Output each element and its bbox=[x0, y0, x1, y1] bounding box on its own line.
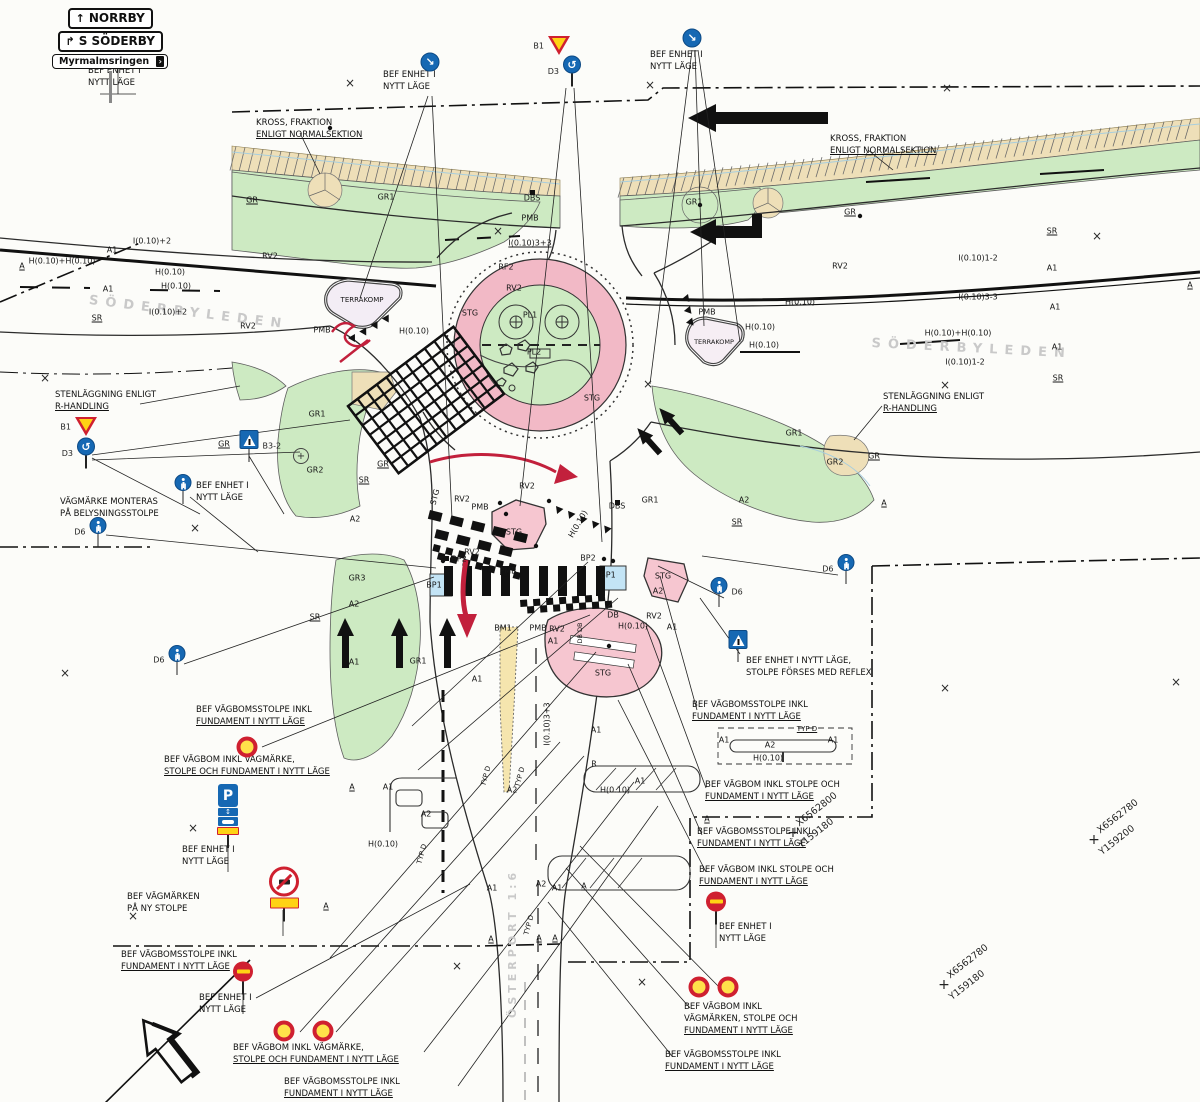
sign-code-label: D3 bbox=[548, 67, 559, 76]
pedestrian-path-sign-icon bbox=[90, 517, 107, 534]
plan-label-bp2: BP2 bbox=[580, 554, 595, 563]
plan-label-gr: GR bbox=[246, 196, 258, 205]
plan-label-h-0-10-: H(0.10) bbox=[785, 298, 815, 307]
plan-label-gr: GR bbox=[844, 208, 856, 217]
callout: BEF ENHET INYTT LÄGE bbox=[383, 70, 436, 94]
plan-label-a1: A1 bbox=[591, 726, 602, 735]
callout-line: STENLÄGGNING ENLIGT bbox=[883, 392, 984, 404]
plan-label-a1: A1 bbox=[1047, 264, 1058, 273]
callout-line: BEF VÄGBOM INKL bbox=[684, 1002, 798, 1014]
callout-line: BEF VÄGBOM INKL VÄGMÄRKE, bbox=[233, 1043, 399, 1055]
sign-code-label: B3-2 bbox=[263, 442, 282, 451]
callout-line: NYTT LÄGE bbox=[196, 493, 249, 505]
plan-label-a1: A1 bbox=[552, 884, 563, 893]
plan-label-pmb: PMB bbox=[471, 503, 488, 512]
callout-line: STOLPE OCH FUNDAMENT I NYTT LÄGE bbox=[164, 767, 330, 779]
survey-x-mark: × bbox=[643, 377, 653, 391]
plan-label-stg: STG bbox=[429, 488, 442, 506]
callout-line: FUNDAMENT I NYTT LÄGE bbox=[284, 1089, 400, 1101]
sign-code-label: D6 bbox=[822, 565, 833, 574]
plan-label-terrakomp: TERRAKOMP bbox=[341, 296, 384, 304]
survey-marker-icon: + bbox=[293, 448, 309, 464]
pedestrian-crossing-sign: B3-2 bbox=[240, 430, 259, 462]
callout-line: STOLPE FÖRSES MED REFLEX bbox=[746, 668, 872, 680]
callout: BEF VÄGBOMSSTOLPE INKLFUNDAMENT I NYTT L… bbox=[121, 950, 237, 974]
survey-x-mark: × bbox=[40, 371, 50, 385]
yield-sign-icon bbox=[548, 36, 570, 56]
plan-label-sr: SR bbox=[92, 314, 103, 323]
callout: VÄGMÄRKE MONTERASPÅ BELYSNINGSSTOLPE bbox=[60, 497, 159, 521]
plan-label-h-0-10-: H(0.10) bbox=[567, 509, 590, 540]
plan-label-gr2: GR2 bbox=[827, 458, 844, 467]
sign-code-label: D6 bbox=[732, 588, 743, 597]
callout-line: NYTT LÄGE bbox=[650, 62, 703, 74]
plan-label-i-0-10-2: I(0.10)+2 bbox=[133, 237, 171, 246]
callout-line: NYTT LÄGE bbox=[199, 1005, 252, 1017]
plan-label-rf2: RF2 bbox=[498, 263, 513, 272]
pedestrian-path-sign: D6 bbox=[169, 645, 186, 675]
callout-line: FUNDAMENT I NYTT LÄGE bbox=[697, 839, 813, 851]
plan-label-sr: SR bbox=[359, 476, 370, 485]
plan-label-h-0-10-: H(0.10) bbox=[749, 341, 779, 350]
keep-right-sign: ↘ bbox=[683, 29, 702, 48]
street-name-label: ÖSTERPORT 1:6 bbox=[506, 869, 519, 1018]
plan-label-pmb: PMB bbox=[313, 326, 330, 335]
plan-label-r: R bbox=[591, 760, 597, 769]
callout: STENLÄGGNING ENLIGTR-HANDLING bbox=[55, 390, 156, 414]
plan-label-h-0-10-h-0-10-: H(0.10)+H(0.10) bbox=[29, 257, 96, 266]
plan-label-i-0-10-3-3: I(0.10)3+3 bbox=[543, 702, 552, 745]
callout-line: BEF ENHET I bbox=[199, 993, 252, 1005]
plan-label-a: A bbox=[19, 262, 24, 271]
plan-label-a1: A1 bbox=[487, 884, 498, 893]
sign-code-label: B1 bbox=[60, 423, 71, 432]
plan-label-bp1: BP1 bbox=[600, 571, 615, 580]
plan-label-sr: SR bbox=[732, 518, 743, 527]
callout: BEF ENHET INYTT LÄGE bbox=[182, 845, 235, 869]
plan-label-a1: A1 bbox=[1050, 303, 1061, 312]
callout: KROSS, FRAKTIONENLIGT NORMALSEKTION bbox=[256, 118, 362, 142]
plan-label-h-0-10-h-0-10-: H(0.10)+H(0.10) bbox=[925, 329, 992, 338]
callout: BEF ENHET INYTT LÄGE bbox=[199, 993, 252, 1017]
direction-sign-row: ↱S SÖDERBY bbox=[58, 31, 163, 52]
plan-label-a2: A2 bbox=[421, 810, 432, 819]
roundabout-sign: ↺D3 bbox=[563, 56, 581, 87]
plan-label-a1: A1 bbox=[828, 736, 839, 745]
survey-x-mark: × bbox=[493, 224, 503, 238]
plan-label-gr2: GR2 bbox=[307, 466, 324, 475]
plan-label-h-0-10-: H(0.10) bbox=[600, 786, 630, 795]
plan-label-a2: A2 bbox=[507, 786, 518, 795]
callout: BEF VÄGBOM INKL STOLPE OCHFUNDAMENT I NY… bbox=[705, 780, 840, 804]
callout: BEF VÄGBOMSSTOLPE INKLFUNDAMENT I NYTT L… bbox=[697, 827, 813, 851]
plan-label-gr1: GR1 bbox=[309, 410, 326, 419]
callout: BEF VÄGBOMSSTOLPE INKLFUNDAMENT I NYTT L… bbox=[284, 1077, 400, 1101]
plan-label-a1: A1 bbox=[635, 777, 646, 786]
sub-plate bbox=[218, 817, 238, 826]
plan-label-stg: STG bbox=[595, 669, 611, 678]
plan-label-i-0-10-3-3: I(0.10)3+3 bbox=[508, 239, 551, 248]
callout-line: BEF VÄGBOMSSTOLPE INKL bbox=[665, 1050, 781, 1062]
yield-sign: B1 bbox=[548, 36, 570, 56]
plan-label-a2: A2 bbox=[536, 880, 547, 889]
plan-label-h-0-10-: H(0.10) bbox=[399, 327, 429, 336]
truck-prohibition-sign-icon bbox=[269, 867, 299, 897]
plan-label-a: A bbox=[581, 882, 586, 891]
plan-label-sr: SR bbox=[1053, 374, 1064, 383]
callout-line: FUNDAMENT I NYTT LÄGE bbox=[665, 1062, 781, 1074]
sign-code-label: D3 bbox=[62, 449, 73, 458]
sub-plate bbox=[270, 898, 299, 909]
pedestrian-crossing-sign bbox=[729, 630, 748, 662]
keep-right-sign: ↘ bbox=[421, 53, 440, 72]
plan-label-db-db: DB DB bbox=[576, 623, 584, 644]
plan-label-a: A bbox=[349, 783, 354, 792]
plan-label-a: A bbox=[552, 934, 557, 943]
callout: BEF ENHET INYTT LÄGE bbox=[196, 481, 249, 505]
plan-label-h-0-10-: H(0.10) bbox=[618, 622, 648, 631]
plan-label-a1: A1 bbox=[383, 783, 394, 792]
roundabout-sign-icon: ↺ bbox=[563, 56, 581, 74]
direction-sign-board: ↑NORRBY↱S SÖDERBYMyrmalmsringen› bbox=[52, 8, 168, 103]
plan-label-a1: A1 bbox=[472, 675, 483, 684]
plan-label-gr1: GR1 bbox=[410, 657, 427, 666]
survey-x-mark: × bbox=[940, 378, 950, 392]
plan-label-stg: STG bbox=[584, 394, 600, 403]
callout-line: FUNDAMENT I NYTT LÄGE bbox=[705, 792, 840, 804]
plan-label-a1: A1 bbox=[1052, 343, 1063, 352]
no-entry-sign-icon bbox=[233, 962, 253, 982]
callout-line: BEF VÄGBOM INKL STOLPE OCH bbox=[699, 865, 834, 877]
barrier-marker-icon bbox=[313, 1021, 334, 1042]
chevron-icon: › bbox=[156, 56, 164, 67]
plan-label-h-0-10-: H(0.10) bbox=[368, 840, 398, 849]
plan-label-rv2: RV2 bbox=[519, 482, 535, 491]
sign-code-label: B1 bbox=[533, 42, 544, 51]
callout-line: VÄGMÄRKEN, STOLPE OCH bbox=[684, 1014, 798, 1026]
callout: BEF VÄGBOM INKL VÄGMÄRKE,STOLPE OCH FUND… bbox=[233, 1043, 399, 1067]
callout-line: BEF ENHET I bbox=[719, 922, 772, 934]
survey-x-mark: × bbox=[637, 975, 647, 989]
callout: BEF VÄGBOM INKL STOLPE OCHFUNDAMENT I NY… bbox=[699, 865, 834, 889]
pedestrian-path-sign-icon bbox=[838, 554, 855, 571]
barrier-marker-icon bbox=[689, 977, 710, 998]
plan-label-bp1: BP1 bbox=[426, 581, 441, 590]
callout-line: STENLÄGGNING ENLIGT bbox=[55, 390, 156, 402]
sub-plate: ↕ bbox=[218, 808, 238, 816]
callout-line: NYTT LÄGE bbox=[383, 82, 436, 94]
pedestrian-path-sign: D6 bbox=[90, 517, 107, 547]
callout: BEF VÄGBOMSSTOLPE INKLFUNDAMENT I NYTT L… bbox=[196, 705, 312, 729]
plan-label-a1: A1 bbox=[107, 246, 118, 255]
callout-line: BEF VÄGBOMSSTOLPE INKL bbox=[121, 950, 237, 962]
street-name-label: SÖDERBYLEDEN bbox=[88, 293, 289, 332]
plan-label-a2: A2 bbox=[349, 600, 360, 609]
plan-label-typ-d: TYP D bbox=[479, 765, 492, 787]
plan-label-typ-d: TYP D bbox=[415, 843, 428, 865]
plan-label-i-0-10-2: I(0.10)+2 bbox=[149, 308, 187, 317]
plan-label-sr: SR bbox=[1047, 227, 1058, 236]
survey-x-mark: × bbox=[60, 666, 70, 680]
survey-x-mark: × bbox=[942, 81, 952, 95]
plan-label-rv2: RV2 bbox=[262, 252, 278, 261]
pedestrian-path-sign bbox=[175, 474, 192, 504]
survey-x-mark: × bbox=[645, 78, 655, 92]
callout-line: NYTT LÄGE bbox=[182, 857, 235, 869]
callout-line: R-HANDLING bbox=[883, 404, 984, 416]
plan-label-a1: A1 bbox=[719, 736, 730, 745]
plan-label-a2: A2 bbox=[765, 741, 776, 750]
pedestrian-path-sign-icon bbox=[711, 577, 728, 594]
callout: BEF ENHET INYTT LÄGE bbox=[650, 50, 703, 74]
callout: BEF VÄGBOM INKLVÄGMÄRKEN, STOLPE OCHFUND… bbox=[684, 1002, 798, 1038]
arrow-icon: ↱ bbox=[66, 33, 75, 50]
callout-line: FUNDAMENT I NYTT LÄGE bbox=[196, 717, 312, 729]
survey-x-mark: × bbox=[1171, 675, 1181, 689]
destination-text: S SÖDERBY bbox=[79, 33, 155, 50]
callout-line: ENLIGT NORMALSEKTION bbox=[256, 130, 362, 142]
plan-label-stg: STG bbox=[506, 528, 522, 537]
road-construction-plan: AH(0.10)+H(0.10)A1I(0.10)+2H(0.10)H(0.10… bbox=[0, 0, 1200, 1102]
survey-x-mark: × bbox=[188, 821, 198, 835]
plan-label-gr: GR bbox=[868, 452, 880, 461]
plan-label-dbs: DBS bbox=[524, 194, 541, 203]
yield-sign: B1 bbox=[75, 417, 97, 437]
survey-x-mark: × bbox=[345, 76, 355, 90]
survey-x-mark: × bbox=[452, 959, 462, 973]
callout: KROSS, FRAKTIONENLIGT NORMALSEKTION bbox=[830, 134, 936, 158]
parking-sign-icon: P bbox=[218, 784, 238, 807]
callout-line: PÅ BELYSNINGSSTOLPE bbox=[60, 509, 159, 521]
plan-label-rv2: RV2 bbox=[240, 322, 256, 331]
callout-line: BEF VÄGBOMSSTOLPE INKL bbox=[692, 700, 808, 712]
plan-label-a1: A1 bbox=[103, 285, 114, 294]
callout: BEF ENHET INYTT LÄGE bbox=[719, 922, 772, 946]
callout-line: FUNDAMENT I NYTT LÄGE bbox=[699, 877, 834, 889]
callout-line: FUNDAMENT I NYTT LÄGE bbox=[121, 962, 237, 974]
plan-label-a1: A1 bbox=[349, 658, 360, 667]
pedestrian-path-sign: D6 bbox=[838, 554, 855, 584]
direction-sign-row: Myrmalmsringen› bbox=[52, 54, 168, 69]
callout-line: R-HANDLING bbox=[55, 402, 156, 414]
keep-right-sign-icon: ↘ bbox=[683, 29, 702, 48]
survey-marker: + bbox=[293, 448, 309, 464]
plan-label-a: A bbox=[323, 902, 328, 911]
plan-label-stg: STG bbox=[655, 572, 671, 581]
plan-label-rv2: RV2 bbox=[549, 625, 565, 634]
plan-label-rv2: RV2 bbox=[646, 612, 662, 621]
callout-line: BEF VÄGBOMSSTOLPE INKL bbox=[284, 1077, 400, 1089]
survey-x-mark: × bbox=[190, 521, 200, 535]
barrier-marker bbox=[718, 977, 739, 998]
barrier-marker bbox=[313, 1021, 334, 1042]
plan-label-typ-d: TYP D bbox=[797, 725, 817, 733]
barrier-marker bbox=[274, 1021, 295, 1042]
sign-code-label: D6 bbox=[74, 528, 85, 537]
plan-label-gr1: GR1 bbox=[686, 198, 703, 207]
sign-code-label: D6 bbox=[153, 656, 164, 665]
plan-label-i-0-10-1-2: I(0.10)1-2 bbox=[945, 358, 984, 367]
keep-right-sign-icon: ↘ bbox=[421, 53, 440, 72]
callout-line: KROSS, FRAKTION bbox=[256, 118, 362, 130]
plan-label-dbs: DBS bbox=[609, 502, 626, 511]
survey-x-mark: × bbox=[940, 681, 950, 695]
callout-line: FUNDAMENT I NYTT LÄGE bbox=[692, 712, 808, 724]
plan-label-rv2: RV2 bbox=[506, 284, 522, 293]
plan-label-typ-d: TYP D bbox=[522, 914, 535, 936]
callout-line: VÄGMÄRKE MONTERAS bbox=[60, 497, 159, 509]
plan-label-gr1: GR1 bbox=[786, 429, 803, 438]
barrier-marker-icon bbox=[718, 977, 739, 998]
callout-line: BEF VÄGMÄRKEN bbox=[127, 892, 200, 904]
plan-label-pmb: PMB bbox=[521, 214, 538, 223]
plan-label-bm1: BM1 bbox=[494, 624, 511, 633]
callout-line: FUNDAMENT I NYTT LÄGE bbox=[684, 1026, 798, 1038]
plan-label-stg: STG bbox=[462, 309, 478, 318]
plan-label-gr1: GR1 bbox=[642, 496, 659, 505]
plan-label-i-0-10-1-2: I(0.10)1-2 bbox=[958, 254, 997, 263]
plan-label-a2: A2 bbox=[350, 515, 361, 524]
plan-label-a: A bbox=[1187, 281, 1192, 290]
callout: BEF VÄGBOMSSTOLPE INKLFUNDAMENT I NYTT L… bbox=[665, 1050, 781, 1074]
plan-label-rv2: RV2 bbox=[832, 262, 848, 271]
plan-label-pl1: PL1 bbox=[523, 311, 537, 320]
plus-icon: + bbox=[938, 977, 950, 993]
callout: STENLÄGGNING ENLIGTR-HANDLING bbox=[883, 392, 984, 416]
plan-label-a1: A1 bbox=[667, 623, 678, 632]
plan-label-rv2: RV2 bbox=[454, 495, 470, 504]
no-entry-sign-icon bbox=[706, 892, 726, 912]
pedestrian-path-sign: D6 bbox=[711, 577, 728, 607]
plan-label-pmb: PMB bbox=[529, 624, 546, 633]
callout-line: BEF ENHET I NYTT LÄGE, bbox=[746, 656, 872, 668]
plan-label-a2: A2 bbox=[739, 496, 750, 505]
pedestrian-path-sign-icon bbox=[175, 474, 192, 491]
callout-line: PÅ NY STOLPE bbox=[127, 904, 200, 916]
pedestrian-crossing-sign-icon bbox=[240, 430, 259, 449]
plan-label-gr3: GR3 bbox=[349, 574, 366, 583]
pedestrian-crossing-sign-icon bbox=[729, 630, 748, 649]
yield-sign-icon bbox=[75, 417, 97, 437]
plan-label-gr: GR bbox=[377, 460, 389, 469]
plan-label-a1: A1 bbox=[548, 637, 559, 646]
no-entry-sign bbox=[706, 892, 726, 925]
plan-label-pl2: PL2 bbox=[527, 348, 541, 357]
sub-plate bbox=[217, 827, 239, 835]
plan-label-a: A bbox=[488, 935, 493, 944]
plan-label-a: A bbox=[881, 499, 886, 508]
callout-line: ENLIGT NORMALSEKTION bbox=[830, 146, 936, 158]
callout-line: KROSS, FRAKTION bbox=[830, 134, 936, 146]
direction-sign-row: ↑NORRBY bbox=[68, 8, 153, 29]
plan-label-i-0-10-3-3: I(0.10)3-3 bbox=[958, 293, 997, 302]
callout-line: BEF ENHET I bbox=[650, 50, 703, 62]
callout-line: NYTT LÄGE bbox=[719, 934, 772, 946]
parking-sign: P↕ bbox=[217, 784, 239, 848]
barrier-marker-icon bbox=[237, 737, 258, 758]
callout: BEF VÄGBOM INKL VÄGMÄRKE,STOLPE OCH FUND… bbox=[164, 755, 330, 779]
plan-label-gr: GR bbox=[218, 440, 230, 449]
no-entry-sign bbox=[233, 962, 253, 995]
pedestrian-path-sign-icon bbox=[169, 645, 186, 662]
callout-line: BEF ENHET I bbox=[383, 70, 436, 82]
barrier-marker bbox=[237, 737, 258, 758]
plan-label-h-0-10-: H(0.10) bbox=[753, 754, 783, 763]
destination-text: NORRBY bbox=[89, 10, 145, 27]
plan-label-pmb: PMB bbox=[499, 567, 516, 576]
roundabout-sign-icon: ↺ bbox=[77, 438, 95, 456]
plan-label-rv2: RV2 bbox=[464, 548, 480, 557]
plan-label-h-0-10-: H(0.10) bbox=[161, 282, 191, 291]
callout-line: BEF VÄGBOMSSTOLPE INKL bbox=[196, 705, 312, 717]
callout-line: STOLPE OCH FUNDAMENT I NYTT LÄGE bbox=[233, 1055, 399, 1067]
callout: BEF ENHET I NYTT LÄGE,STOLPE FÖRSES MED … bbox=[746, 656, 872, 680]
plan-label-h-0-10-: H(0.10) bbox=[155, 268, 185, 277]
truck-prohibition-sign bbox=[269, 867, 299, 922]
arrow-icon: ↑ bbox=[76, 10, 85, 27]
callout-line: BEF ENHET I bbox=[196, 481, 249, 493]
barrier-marker bbox=[689, 977, 710, 998]
plan-label-sr: SR bbox=[310, 613, 321, 622]
plan-label-a2: A2 bbox=[653, 587, 664, 596]
annotation-overlay: AH(0.10)+H(0.10)A1I(0.10)+2H(0.10)H(0.10… bbox=[0, 0, 1200, 1102]
destination-text: Myrmalmsringen bbox=[59, 55, 149, 68]
roundabout-sign: ↺D3 bbox=[77, 438, 95, 469]
callout-line: BEF VÄGBOMSSTOLPE INKL bbox=[697, 827, 813, 839]
plan-label-h-0-10-: H(0.10) bbox=[745, 323, 775, 332]
plan-label-a: A bbox=[536, 934, 541, 943]
survey-x-mark: × bbox=[1092, 229, 1102, 243]
plan-label-gr1: GR1 bbox=[378, 193, 395, 202]
plus-icon: + bbox=[1088, 832, 1100, 848]
callout: BEF VÄGBOMSSTOLPE INKLFUNDAMENT I NYTT L… bbox=[692, 700, 808, 724]
callout: BEF VÄGMÄRKENPÅ NY STOLPE bbox=[127, 892, 200, 916]
plan-label-a: A bbox=[704, 815, 709, 824]
plan-label-db: DB bbox=[607, 611, 619, 620]
plan-label-terrakomp: TERRAKOMP bbox=[694, 338, 734, 346]
barrier-marker-icon bbox=[274, 1021, 295, 1042]
callout-line: BEF VÄGBOM INKL STOLPE OCH bbox=[705, 780, 840, 792]
plan-label-pmb: PMB bbox=[698, 308, 715, 317]
